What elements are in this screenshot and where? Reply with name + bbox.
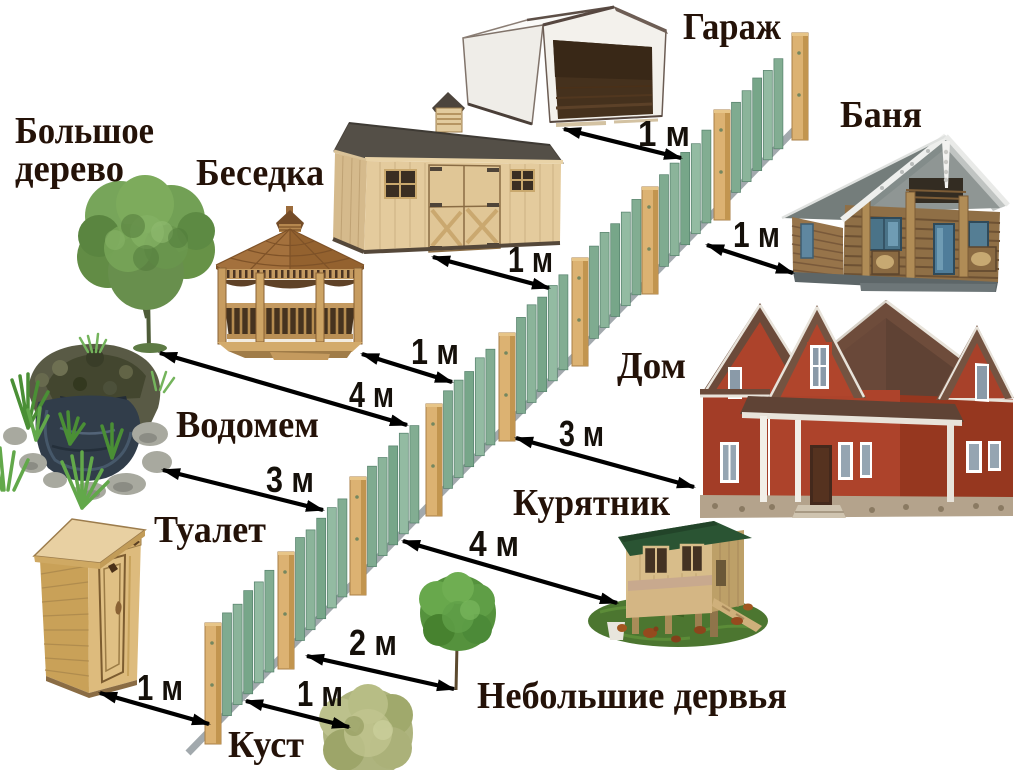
svg-text:Гараж: Гараж bbox=[683, 6, 781, 48]
svg-text:Курятник: Курятник bbox=[513, 482, 670, 524]
svg-text:Куст: Куст bbox=[228, 724, 304, 766]
svg-text:Беседка: Беседка bbox=[196, 152, 324, 194]
svg-text:1 м: 1 м bbox=[297, 673, 343, 714]
svg-text:2 м: 2 м bbox=[349, 622, 397, 663]
svg-text:1 м: 1 м bbox=[508, 239, 553, 280]
svg-text:3 м: 3 м bbox=[559, 413, 604, 454]
svg-text:4 м: 4 м bbox=[349, 374, 394, 415]
svg-text:Большое: Большое bbox=[15, 110, 154, 152]
svg-text:1 м: 1 м bbox=[411, 331, 459, 372]
svg-text:дерево: дерево bbox=[15, 148, 124, 190]
svg-text:Баня: Баня bbox=[840, 94, 922, 136]
svg-text:Водомем: Водомем bbox=[176, 404, 319, 446]
svg-text:1 м: 1 м bbox=[638, 113, 690, 154]
svg-text:4 м: 4 м bbox=[469, 523, 519, 564]
svg-text:1 м: 1 м bbox=[733, 214, 780, 255]
svg-text:Дом: Дом bbox=[617, 345, 686, 387]
svg-text:1 м: 1 м bbox=[137, 667, 183, 708]
svg-text:Небольшие дервья: Небольшие дервья bbox=[477, 675, 787, 717]
svg-text:3 м: 3 м bbox=[266, 459, 314, 500]
svg-text:Туалет: Туалет bbox=[154, 509, 266, 551]
